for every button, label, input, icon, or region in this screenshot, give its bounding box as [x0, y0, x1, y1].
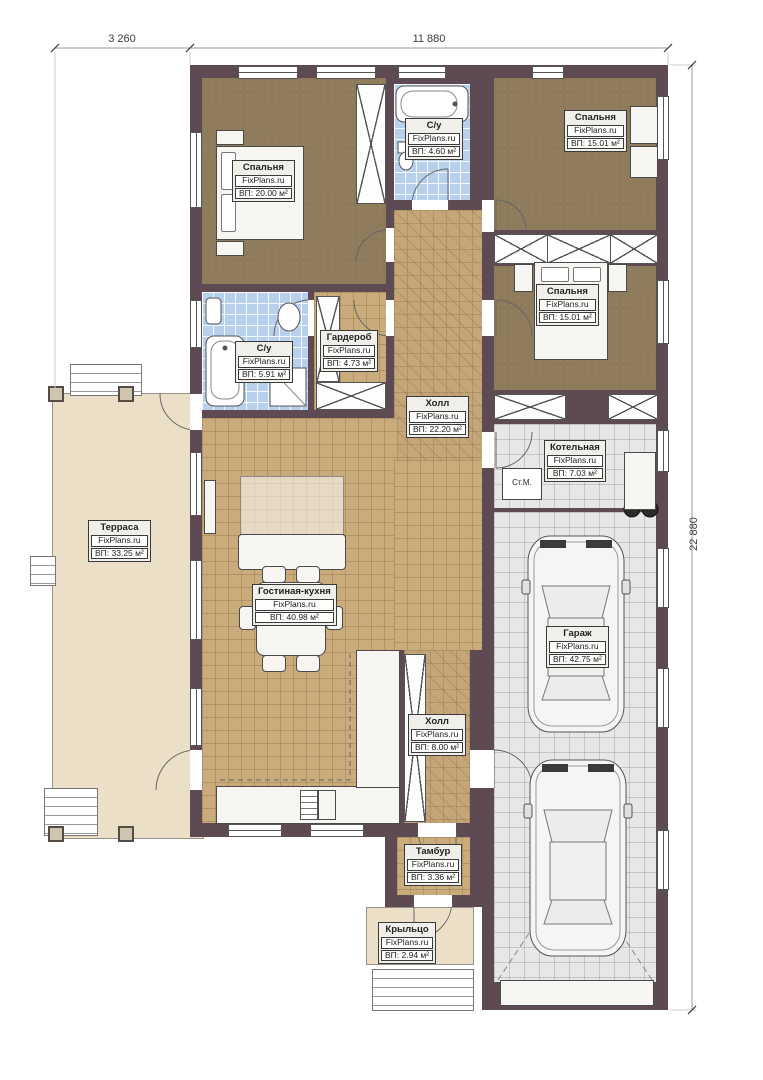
door-opening-bedroom1 [386, 228, 394, 262]
dimension-terrace-width: 3 260 [92, 33, 152, 45]
terrace-floor [52, 393, 204, 839]
door-opening-garage [470, 750, 494, 788]
room-name: Гардероб [323, 333, 375, 344]
window [657, 830, 669, 890]
window [190, 300, 202, 348]
terrace-steps-left [30, 556, 56, 586]
room-label-bath-2: С/у FixPlans.ru ВП: 5.91 м² [235, 341, 293, 383]
window [657, 668, 669, 728]
door-opening-boiler [482, 432, 494, 468]
window [190, 132, 202, 208]
room-area: ВП: 3.36 м² [407, 872, 459, 884]
room-name: Спальня [235, 163, 292, 174]
room-area: ВП: 15.01 м² [539, 312, 596, 324]
brand-link: FixPlans.ru [235, 175, 292, 187]
terrace-column [48, 826, 64, 842]
window [657, 280, 669, 344]
room-label-bedroom-3: Спальня FixPlans.ru ВП: 15.01 м² [536, 284, 599, 326]
room-name: Котельная [547, 443, 603, 454]
room-name: Холл [411, 717, 463, 728]
brand-link: FixPlans.ru [409, 411, 466, 423]
nightstand [216, 130, 244, 145]
washing-machine: Ст.М. [502, 468, 542, 500]
brand-link: FixPlans.ru [238, 356, 290, 368]
wardrobe-box [547, 234, 611, 264]
room-name: Терраса [91, 523, 148, 534]
brand-link: FixPlans.ru [255, 599, 334, 611]
boiler-counter [624, 452, 656, 510]
room-area: ВП: 22.20 м² [409, 424, 466, 436]
room-area: ВП: 7.03 м² [547, 468, 603, 480]
chair [262, 655, 286, 672]
door-opening-entrance [414, 895, 452, 907]
room-name: Гараж [549, 629, 606, 640]
brand-link: FixPlans.ru [381, 937, 433, 949]
window [228, 824, 282, 837]
door-opening-terrace-top [190, 394, 202, 430]
brand-link: FixPlans.ru [91, 535, 148, 547]
window [657, 430, 669, 472]
room-name: Тамбур [407, 847, 459, 858]
room-area: ВП: 40.98 м² [255, 612, 334, 624]
wardrobe-box [610, 234, 658, 264]
brand-link: FixPlans.ru [549, 641, 606, 653]
room-label-living: Гостиная-кухня FixPlans.ru ВП: 40.98 м² [252, 584, 337, 626]
room-name: С/у [408, 121, 460, 132]
room-label-bath-1: С/у FixPlans.ru ВП: 4.60 м² [405, 118, 463, 160]
room-name: Гостиная-кухня [255, 587, 334, 598]
brand-link: FixPlans.ru [323, 345, 375, 357]
oven [300, 790, 318, 820]
window [310, 824, 364, 837]
window [657, 548, 669, 608]
nightstand [216, 241, 244, 256]
room-label-wardrobe: Гардероб FixPlans.ru ВП: 4.73 м² [320, 330, 378, 372]
door-opening-bath2 [308, 300, 314, 336]
brand-link: FixPlans.ru [547, 455, 603, 467]
floor-plan: Ст.М. Спальня FixPlans.ru ВП: 20.00 м² С… [0, 0, 763, 1080]
door-opening-bedroom2 [482, 200, 494, 232]
dresser [630, 146, 658, 178]
room-name: Спальня [567, 113, 624, 124]
room-area: ВП: 4.60 м² [408, 146, 460, 158]
dimension-house-width: 11 880 [399, 33, 459, 45]
nightstand [608, 264, 627, 292]
wardrobe-box [494, 234, 548, 264]
door-opening-tambour [418, 823, 456, 837]
chair [296, 655, 320, 672]
nightstand [514, 264, 533, 292]
room-area: ВП: 20.00 м² [235, 188, 292, 200]
dimension-house-height: 22 880 [688, 504, 700, 564]
brand-link: FixPlans.ru [539, 299, 596, 311]
tv-stand [204, 480, 216, 534]
kitchen-counter-right [356, 650, 400, 788]
room-area: ВП: 42.75 м² [549, 654, 606, 666]
window [190, 688, 202, 746]
chair [296, 566, 320, 583]
brand-link: FixPlans.ru [567, 125, 624, 137]
door-opening-bath1 [412, 200, 448, 210]
room-name: Крыльцо [381, 925, 433, 936]
room-label-hall-2: Холл FixPlans.ru ВП: 8.00 м² [408, 714, 466, 756]
window [532, 66, 564, 79]
terrace-column [118, 386, 134, 402]
room-label-bedroom-1: Спальня FixPlans.ru ВП: 20.00 м² [232, 160, 295, 202]
brand-link: FixPlans.ru [407, 859, 459, 871]
room-label-bedroom-2: Спальня FixPlans.ru ВП: 15.01 м² [564, 110, 627, 152]
dresser [630, 106, 658, 144]
wardrobe-box [494, 394, 566, 420]
dishwasher [318, 790, 336, 820]
brand-link: FixPlans.ru [411, 729, 463, 741]
window [657, 96, 669, 160]
door-opening-wardrobe [386, 300, 394, 336]
room-label-tambour: Тамбур FixPlans.ru ВП: 3.36 м² [404, 844, 462, 886]
window [316, 66, 376, 79]
brand-link: FixPlans.ru [408, 133, 460, 145]
window [190, 452, 202, 516]
wardrobe-box [608, 394, 658, 420]
garage-floor [494, 512, 656, 982]
garage-gate [500, 980, 654, 1006]
room-label-terrace: Терраса FixPlans.ru ВП: 33.25 м² [88, 520, 151, 562]
washing-machine-label: Ст.М. [512, 478, 532, 487]
room-area: ВП: 15.01 м² [567, 138, 624, 150]
porch-steps [372, 969, 474, 1011]
sofa [238, 534, 346, 570]
room-name: Спальня [539, 287, 596, 298]
room-label-boiler: Котельная FixPlans.ru ВП: 7.03 м² [544, 440, 606, 482]
room-area: ВП: 2.94 м² [381, 950, 433, 962]
room-area: ВП: 33.25 м² [91, 548, 148, 560]
pillow [573, 267, 601, 282]
chair [262, 566, 286, 583]
room-label-hall-1: Холл FixPlans.ru ВП: 22.20 м² [406, 396, 469, 438]
room-area: ВП: 5.91 м² [238, 369, 290, 381]
room-label-garage: Гараж FixPlans.ru ВП: 42.75 м² [546, 626, 609, 668]
door-opening-terrace-bottom [190, 750, 202, 790]
door-opening-bedroom3 [482, 300, 494, 336]
room-name: С/у [238, 344, 290, 355]
hall-transition-floor [394, 460, 482, 650]
window [398, 66, 446, 79]
room-name: Холл [409, 399, 466, 410]
terrace-column [118, 826, 134, 842]
bedroom1-closet [356, 84, 386, 204]
window [190, 560, 202, 640]
window [238, 66, 298, 79]
pillow [541, 267, 569, 282]
room-label-porch: Крыльцо FixPlans.ru ВП: 2.94 м² [378, 922, 436, 964]
room-area: ВП: 4.73 м² [323, 358, 375, 370]
rug [240, 476, 344, 536]
room-area: ВП: 8.00 м² [411, 742, 463, 754]
wardrobe-shelf-bottom [316, 382, 386, 410]
terrace-column [48, 386, 64, 402]
